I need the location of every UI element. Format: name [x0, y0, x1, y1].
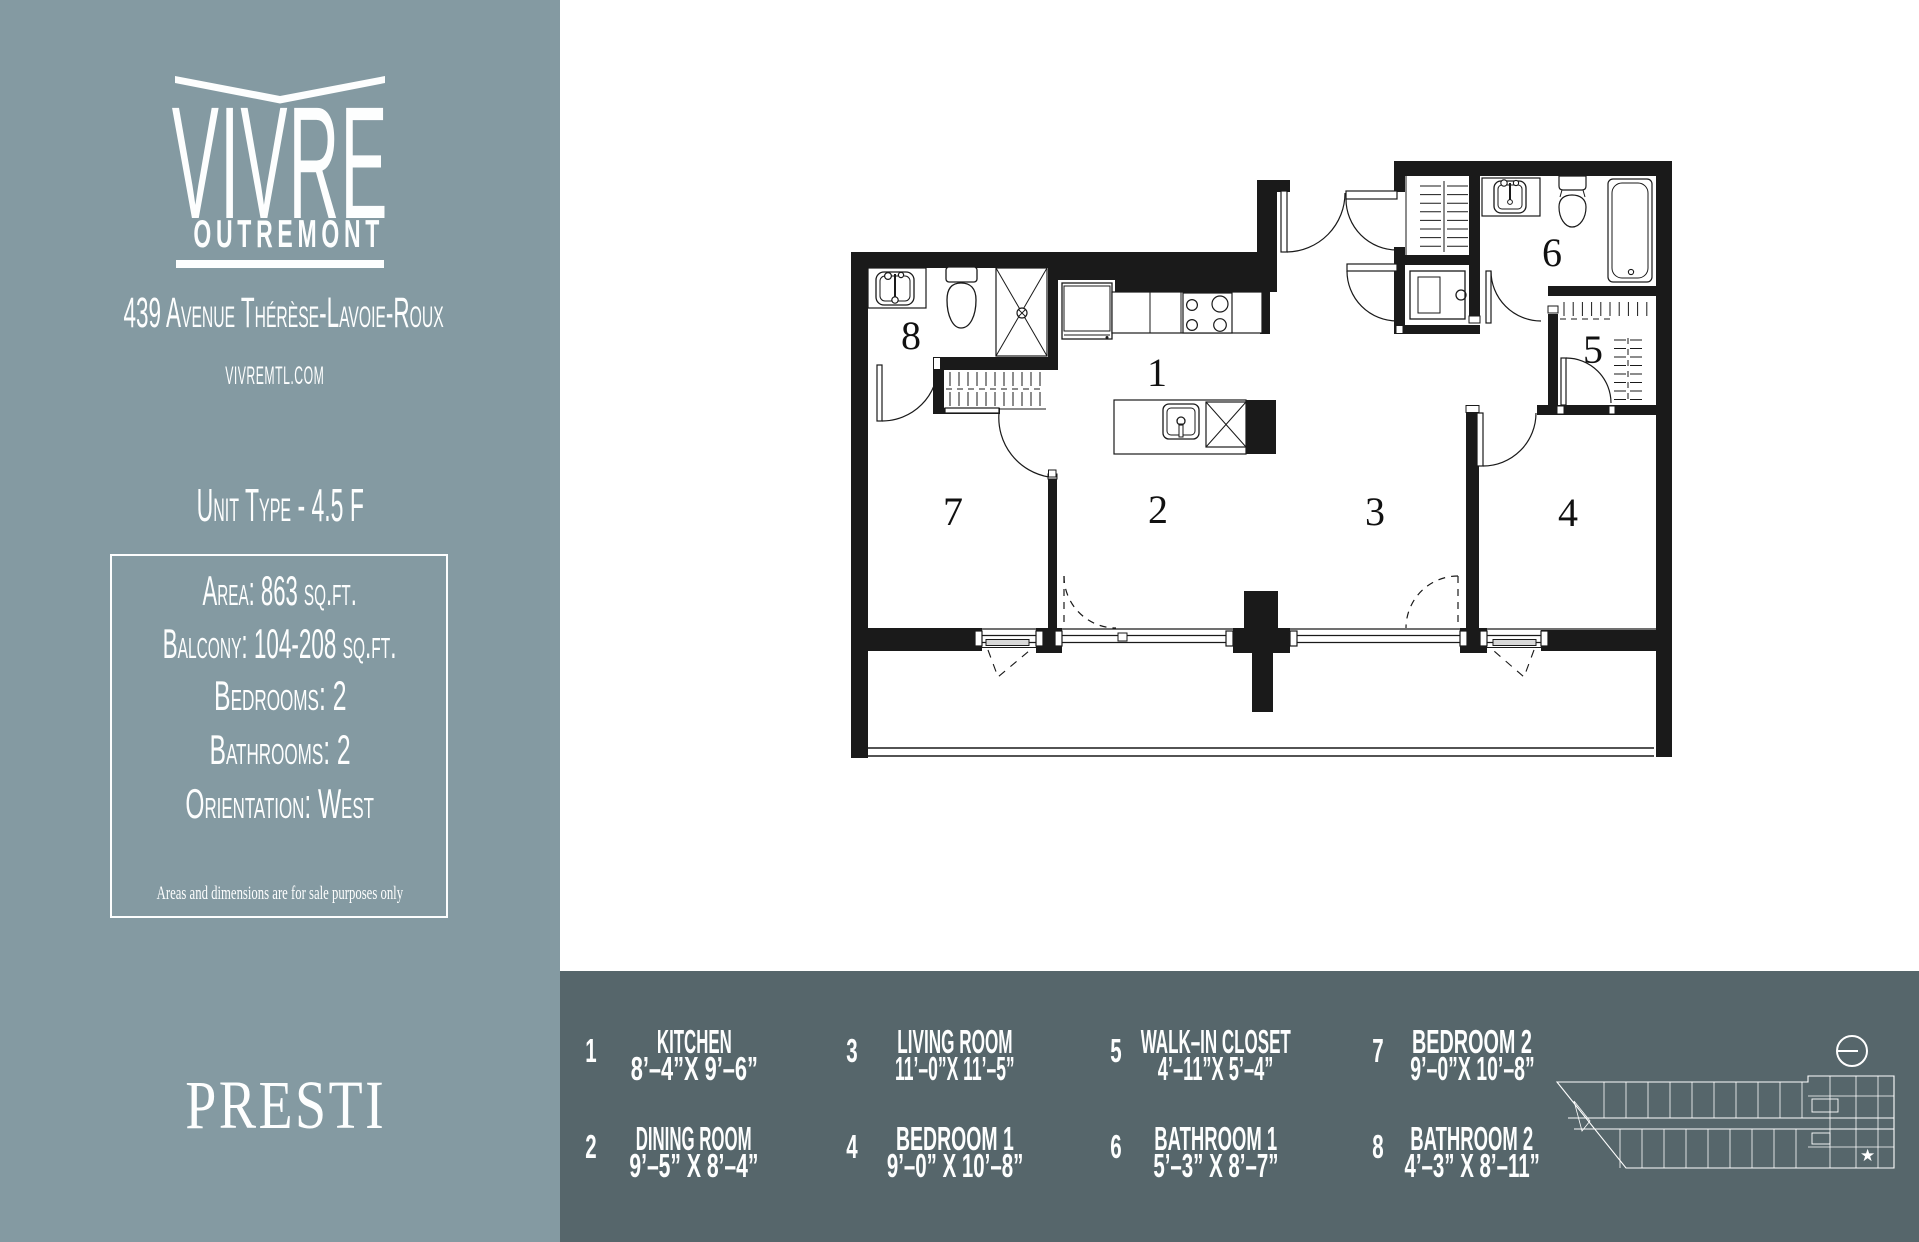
svg-text:5: 5: [1583, 327, 1603, 372]
svg-text:4: 4: [1558, 490, 1578, 535]
svg-text:2: 2: [1148, 487, 1168, 532]
svg-text:1: 1: [1147, 350, 1167, 395]
svg-text:★: ★: [1860, 1146, 1875, 1165]
svg-text:8: 8: [901, 313, 921, 358]
svg-text:3: 3: [1365, 489, 1385, 534]
svg-text:6: 6: [1542, 230, 1562, 275]
svg-text:7: 7: [943, 489, 963, 534]
